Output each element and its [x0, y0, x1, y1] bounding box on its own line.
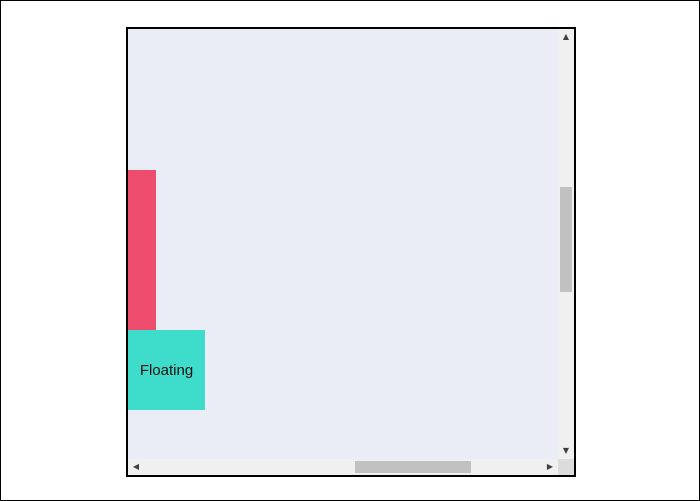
window-frame: Floating ▲ ▼ ◀ ▶ — [0, 0, 700, 501]
floating-box: Floating — [128, 330, 205, 410]
scroll-up-button[interactable]: ▲ — [558, 29, 574, 45]
pink-vertical-bar — [128, 170, 156, 330]
scroll-right-button[interactable]: ▶ — [542, 459, 558, 475]
scrollbar-corner — [558, 459, 574, 475]
right-arrow-icon: ▶ — [547, 459, 553, 475]
horizontal-scrollbar[interactable]: ◀ ▶ — [128, 459, 558, 475]
scroll-left-button[interactable]: ◀ — [128, 459, 144, 475]
vertical-scrollbar[interactable]: ▲ ▼ — [558, 29, 574, 459]
up-arrow-icon: ▲ — [563, 29, 569, 45]
down-arrow-icon: ▼ — [563, 443, 569, 459]
vertical-scrollbar-thumb[interactable] — [560, 187, 572, 292]
horizontal-scrollbar-thumb[interactable] — [355, 461, 471, 473]
left-arrow-icon: ◀ — [133, 459, 139, 475]
scroll-down-button[interactable]: ▼ — [558, 443, 574, 459]
scroll-area: Floating ▲ ▼ ◀ ▶ — [126, 27, 576, 477]
floating-box-label: Floating — [140, 362, 193, 379]
